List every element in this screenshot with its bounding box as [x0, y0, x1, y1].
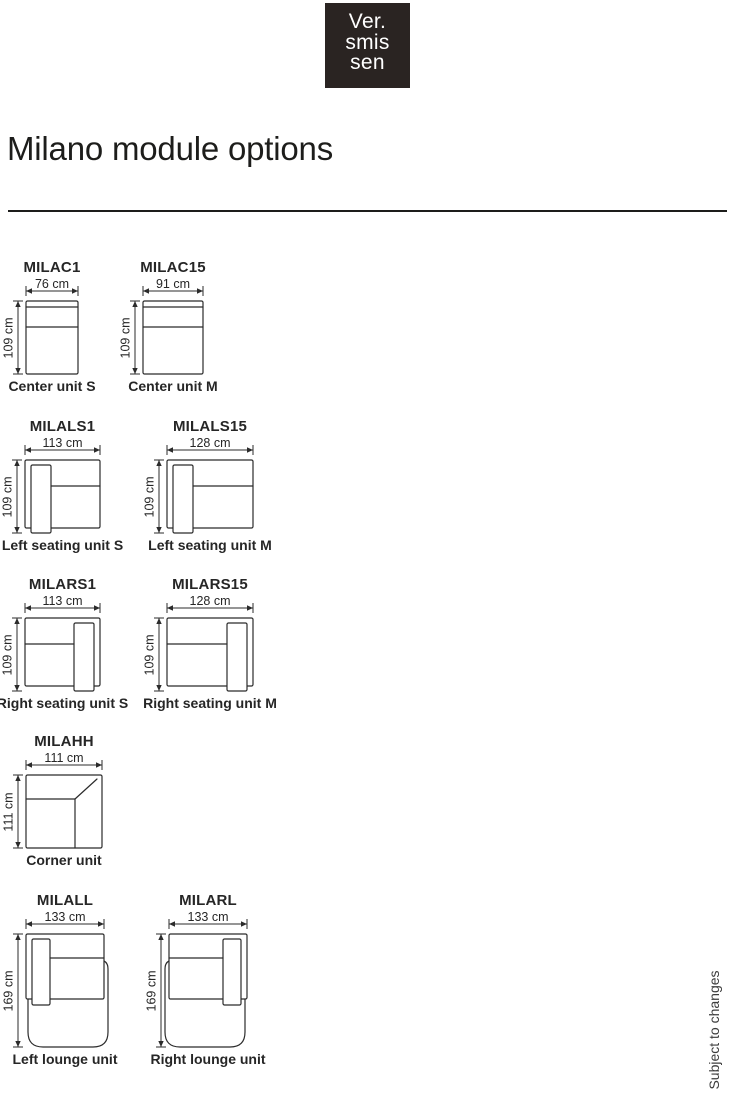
diagram-milars15 — [159, 615, 261, 696]
height-label-milahh: 111 cm — [2, 792, 15, 831]
module-code-milac15: MILAC15 — [140, 260, 206, 276]
module-caption-milall: Left lounge unit — [13, 1052, 118, 1067]
module-code-milac1: MILAC1 — [23, 260, 80, 276]
diagram-milars1 — [17, 615, 108, 696]
diagram-milac1 — [18, 298, 86, 379]
diagram-milals1 — [17, 457, 108, 538]
module-caption-milahh: Corner unit — [26, 853, 101, 868]
module-caption-milals1: Left seating unit S — [2, 538, 123, 553]
height-label-milac1: 109 cm — [2, 317, 15, 358]
width-arrow-milall — [22, 918, 108, 930]
diagram-milals15 — [159, 457, 261, 538]
module-code-milarl: MILARL — [179, 893, 237, 909]
width-arrow-milac1 — [22, 285, 82, 297]
module-code-milars15: MILARS15 — [172, 577, 248, 593]
width-arrow-milals15 — [163, 444, 257, 456]
brand-logo: Ver. smis sen — [325, 3, 410, 88]
module-caption-milac1: Center unit S — [8, 379, 95, 394]
height-label-milall: 169 cm — [2, 970, 15, 1011]
module-caption-milars15: Right seating unit M — [143, 696, 277, 711]
module-caption-milals15: Left seating unit M — [148, 538, 272, 553]
width-arrow-milals1 — [21, 444, 104, 456]
width-arrow-milars15 — [163, 602, 257, 614]
title-divider — [8, 210, 727, 212]
height-label-milars1: 109 cm — [1, 634, 14, 675]
height-label-milals1: 109 cm — [1, 476, 14, 517]
module-code-milals1: MILALS1 — [30, 419, 96, 435]
width-arrow-milarl — [165, 918, 251, 930]
page-title: Milano module options — [7, 131, 333, 167]
module-code-milall: MILALL — [37, 893, 93, 909]
width-arrow-milac15 — [139, 285, 207, 297]
module-code-milals15: MILALS15 — [173, 419, 247, 435]
diagram-milac15 — [135, 298, 211, 379]
width-arrow-milahh — [22, 759, 106, 771]
height-label-milac15: 109 cm — [119, 317, 132, 358]
brand-logo-line-2: smis — [325, 33, 410, 54]
module-caption-milars1: Right seating unit S — [0, 696, 128, 711]
diagram-milall — [18, 931, 112, 1052]
brand-logo-line-1: Ver. — [325, 12, 410, 33]
module-code-milahh: MILAHH — [34, 734, 94, 750]
brand-logo-line-3: sen — [325, 53, 410, 74]
module-caption-milarl: Right lounge unit — [150, 1052, 265, 1067]
width-arrow-milars1 — [21, 602, 104, 614]
spec-sheet-page: Ver. smis sen Milano module options MILA… — [0, 0, 736, 1100]
height-label-milarl: 169 cm — [145, 970, 158, 1011]
diagram-milahh — [18, 772, 110, 853]
subject-to-changes-note: Subject to changes — [706, 970, 722, 1089]
diagram-milarl — [161, 931, 255, 1052]
height-label-milars15: 109 cm — [143, 634, 156, 675]
height-label-milals15: 109 cm — [143, 476, 156, 517]
module-caption-milac15: Center unit M — [128, 379, 217, 394]
module-code-milars1: MILARS1 — [29, 577, 96, 593]
